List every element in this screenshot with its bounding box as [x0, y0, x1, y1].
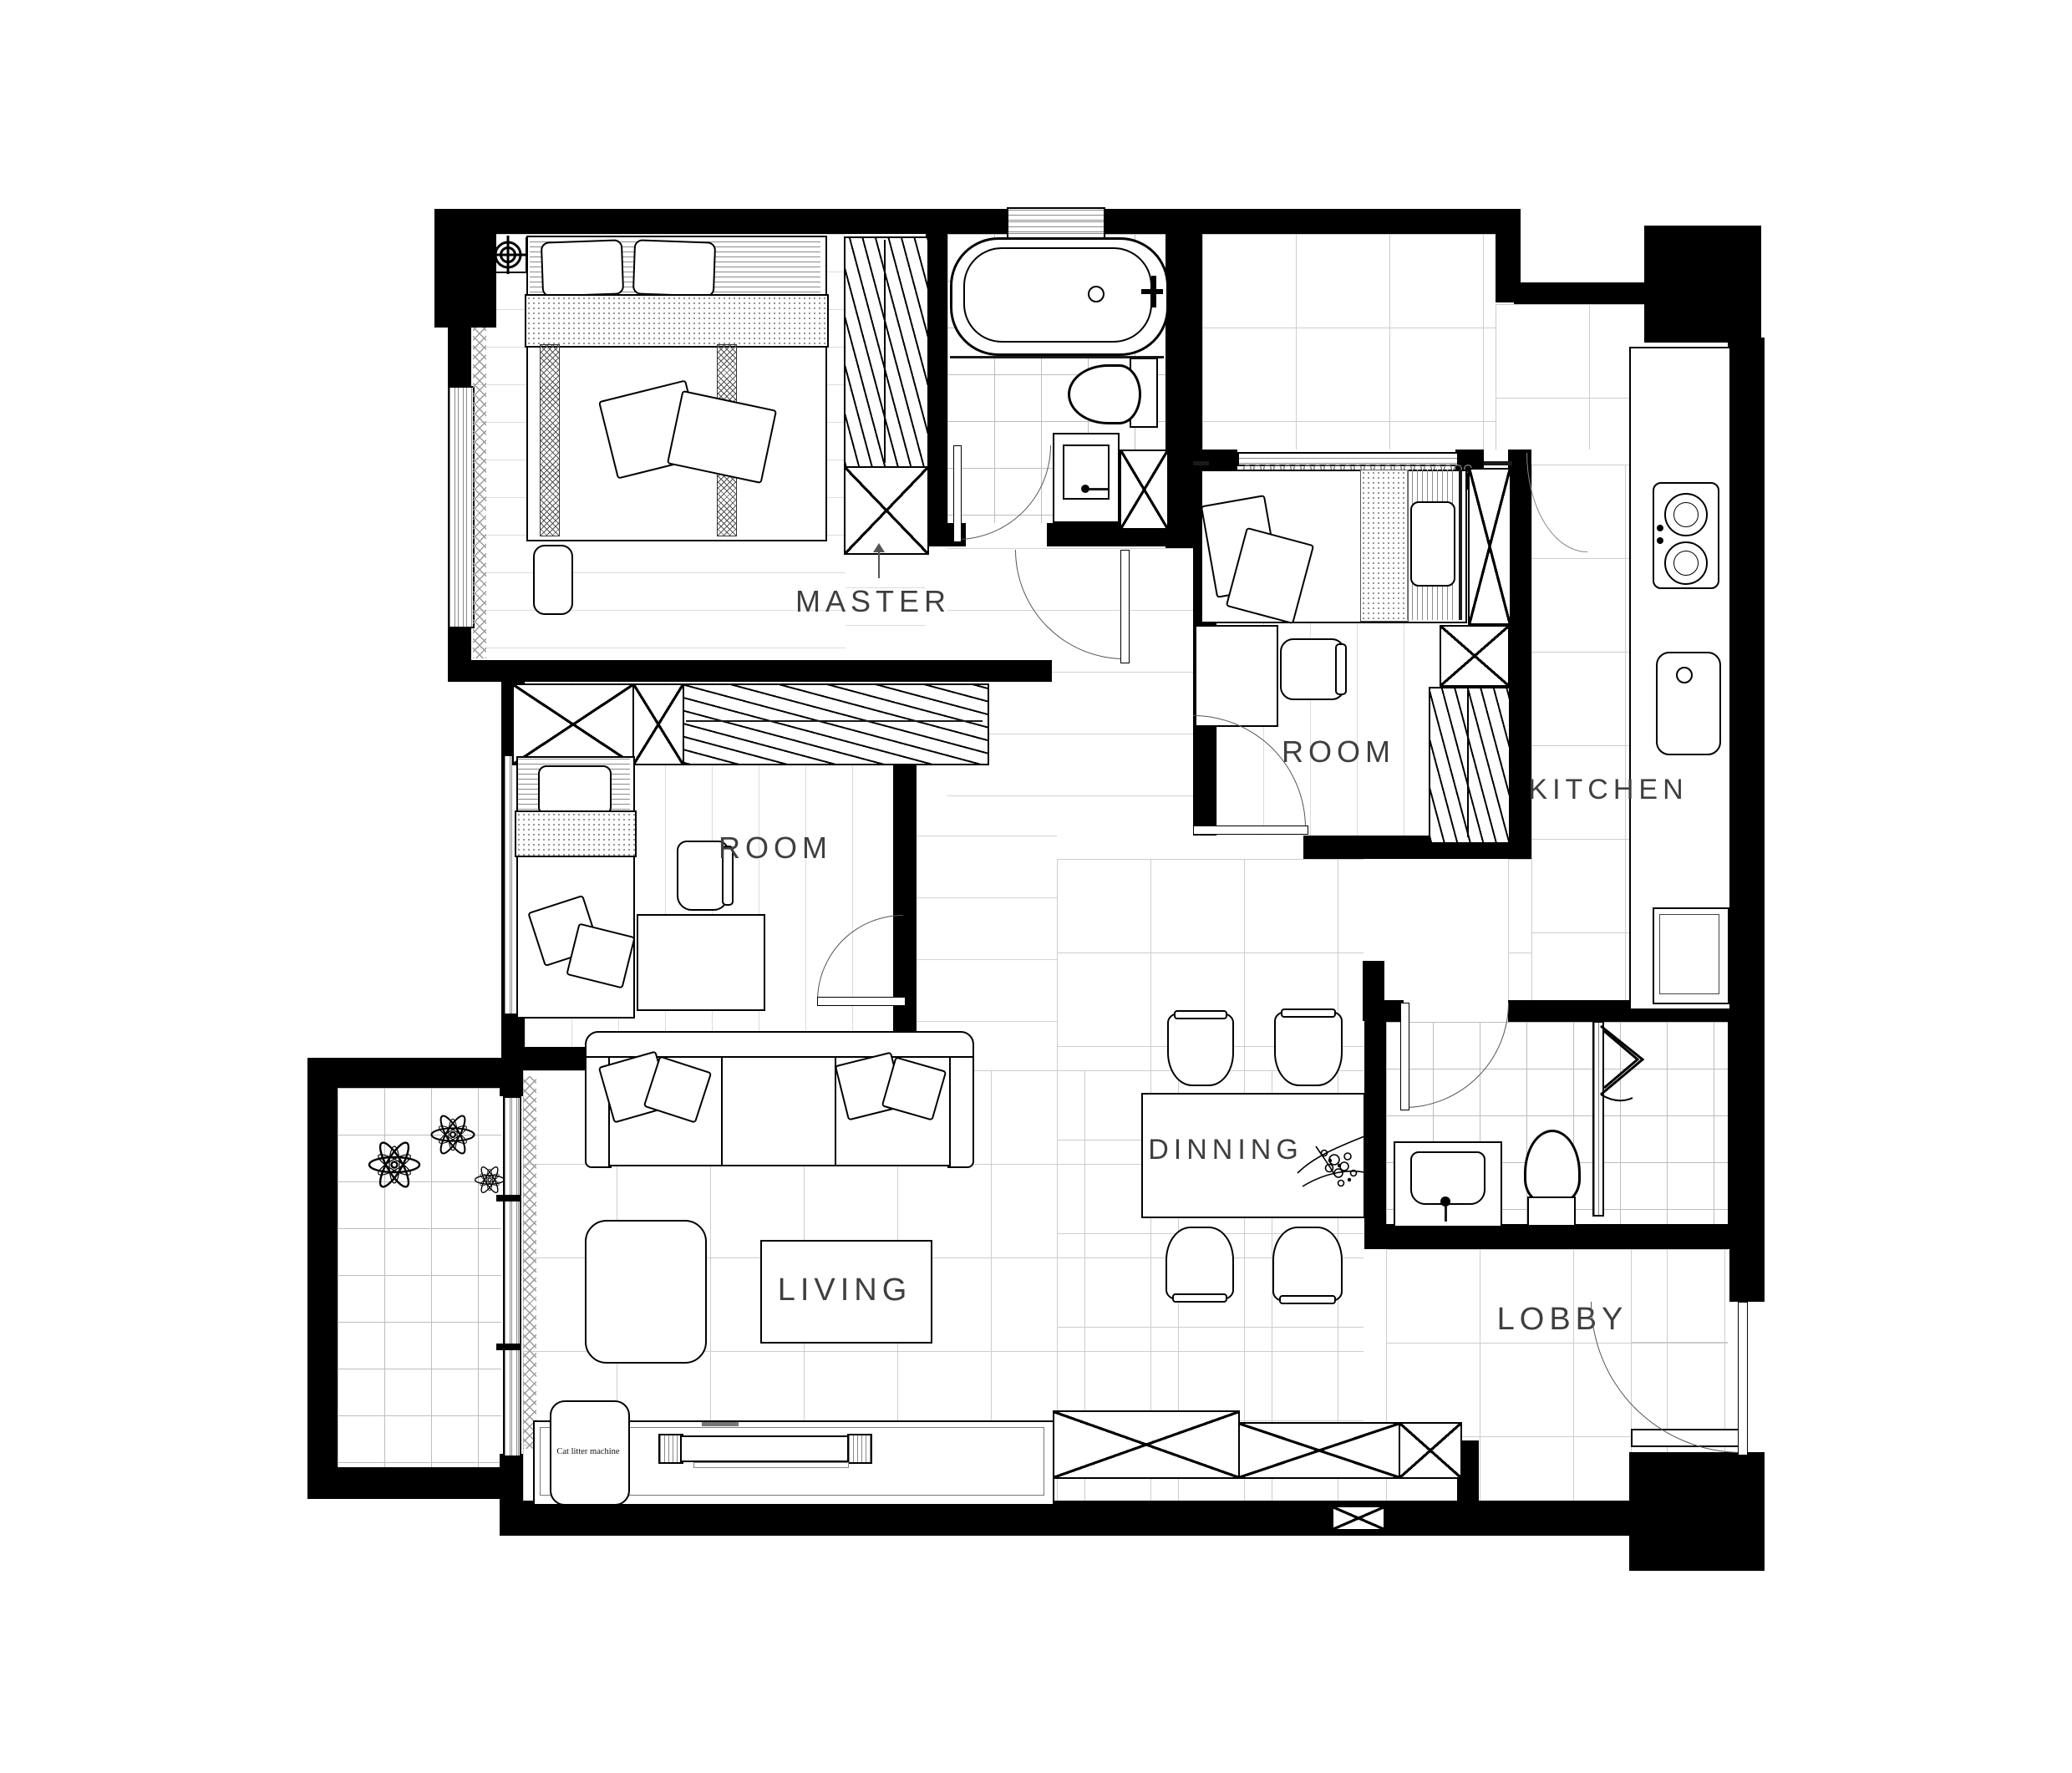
wall-step-horizontal: [1514, 282, 1646, 304]
wall-entry-frame: [1729, 1248, 1765, 1302]
stove-knob-2: [1657, 537, 1663, 544]
bath2-door[interactable]: [1400, 1003, 1409, 1110]
dining-label: DINNING: [1159, 1133, 1292, 1166]
roomright-cabinet-tall: [1468, 468, 1511, 625]
shoe-cabinet-1: [1053, 1410, 1240, 1479]
bath2-faucet-stem: [1445, 1207, 1447, 1222]
toilet1-bowl: [1068, 364, 1141, 424]
roomleft-wardrobe-hangers: [683, 683, 989, 765]
roomright-curtain-panel: [1360, 470, 1409, 622]
bathtub-drain: [1088, 286, 1105, 302]
wall-top-left-block: [434, 209, 496, 328]
wall-bottom: [500, 1501, 1631, 1536]
stove-knob-1: [1657, 525, 1663, 531]
roomright-headboard: [1459, 470, 1462, 620]
tv-screen: [680, 1435, 851, 1462]
master-bed-throw: [525, 294, 829, 348]
master-arrow-line: [878, 551, 880, 578]
wall-bath2-south: [1364, 1224, 1765, 1249]
wall-corner-block-se: [1629, 1452, 1765, 1571]
wall-right-lower: [1728, 1006, 1765, 1248]
toilet2-tank: [1527, 1196, 1576, 1227]
dining-chair-3: [1165, 1227, 1234, 1300]
roomright-door[interactable]: [1193, 826, 1308, 835]
shoe-cabinet-3: [1399, 1422, 1462, 1479]
bathtub-faucet-v: [1151, 276, 1156, 307]
dining-chair-2: [1274, 1011, 1343, 1086]
master-pillow-1: [541, 239, 624, 297]
roomleft-label: ROOM: [717, 831, 834, 865]
floor-plan: MASTER ROOM ROOM: [0, 0, 2072, 1773]
roomleft-wardrobe-rail: [686, 720, 983, 722]
threshold-blocking: [1332, 1506, 1385, 1531]
master-closet-rail: [884, 240, 886, 463]
sofa-seat-2: [721, 1056, 838, 1166]
dining-flowers: [1291, 1121, 1374, 1201]
kitchen-faucet: [1676, 667, 1693, 683]
wall-master-south: [510, 660, 1052, 682]
bath1-door-arc: [957, 445, 1051, 540]
master-closet-hangers: [844, 236, 929, 470]
tv-shelf-line: [693, 1462, 849, 1468]
dining-chair-4: [1272, 1227, 1343, 1302]
roomleft-cabinet-2: [632, 683, 684, 765]
roomright-closet-hangers: [1429, 687, 1511, 844]
balcony-plants: [346, 1100, 513, 1225]
roomright-chair-back: [1335, 643, 1347, 695]
living-label: LIVING: [760, 1240, 929, 1340]
roomright-desk: [1195, 625, 1278, 727]
curtain-living: [523, 1076, 536, 1449]
kitchen-floor-sliver: [1508, 859, 1531, 1000]
entrance-door[interactable]: [1738, 1302, 1748, 1455]
master-bed-runner-1: [540, 344, 560, 536]
kitchen-floor-top: [1202, 234, 1496, 450]
cat-litter-label: Cat litter machine: [548, 1400, 628, 1502]
master-door[interactable]: [1120, 550, 1130, 663]
roomleft-pillow: [538, 765, 612, 815]
roomright-closet-rail: [1467, 690, 1469, 837]
bathtub-inner: [963, 247, 1152, 343]
ceiling-target-icon: [488, 234, 528, 276]
tv-annotation: [702, 1422, 739, 1426]
stove-burner-1: [1664, 493, 1708, 536]
wall-left-a: [448, 323, 471, 388]
wall-balcony-top: [307, 1058, 523, 1088]
kitchen-label: KITCHEN: [1537, 773, 1679, 806]
roomright-label: ROOM: [1280, 735, 1397, 769]
wall-top-right-block: [1644, 226, 1761, 343]
bath1-faucet-stem: [1089, 488, 1109, 490]
hall-floor-lower: [917, 836, 1057, 1047]
kitchen-floor-step: [1496, 304, 1644, 450]
tv-speaker-right: [847, 1434, 872, 1464]
roomright-pillow: [1410, 501, 1455, 587]
wall-roomleft-east: [893, 752, 917, 1057]
stove-burner-2: [1664, 541, 1708, 585]
master-stool: [533, 545, 573, 615]
master-pillow-2: [632, 239, 716, 297]
wall-balcdoor-blk-bot: [500, 1454, 523, 1502]
roomleft-bed-throw: [515, 810, 637, 857]
roomleft-cabinet-1: [512, 683, 634, 765]
shower-door[interactable]: [1599, 1024, 1651, 1118]
kitchen-appliance-inner: [1659, 914, 1719, 994]
roomleft-door[interactable]: [817, 997, 906, 1006]
roomright-cabinet-square: [1440, 625, 1510, 687]
wall-right-upper: [1728, 338, 1765, 1008]
wall-balcony-left: [307, 1058, 338, 1499]
wall-balcdoor-blk-top: [500, 1059, 523, 1096]
curtain-master: [473, 328, 486, 658]
shoe-cabinet-2: [1238, 1422, 1400, 1479]
master-closet-cabinet: [844, 466, 929, 555]
master-arrow-head: [873, 543, 885, 552]
dining-chair-1: [1167, 1013, 1234, 1086]
balcony-door-handle-2: [496, 1344, 521, 1350]
window-bath1-top: [1007, 207, 1105, 239]
ottoman: [585, 1220, 707, 1364]
wall-balcony-bottom: [307, 1467, 523, 1499]
bath1-door[interactable]: [953, 445, 962, 542]
sofa-arm-right: [947, 1056, 974, 1168]
roomleft-desk: [637, 914, 765, 1011]
master-label: MASTER: [794, 583, 952, 620]
bath2-faucet: [1440, 1196, 1450, 1207]
window-master-left: [448, 386, 475, 628]
bath1-cabinet: [1120, 450, 1169, 530]
wall-top: [434, 209, 1497, 234]
